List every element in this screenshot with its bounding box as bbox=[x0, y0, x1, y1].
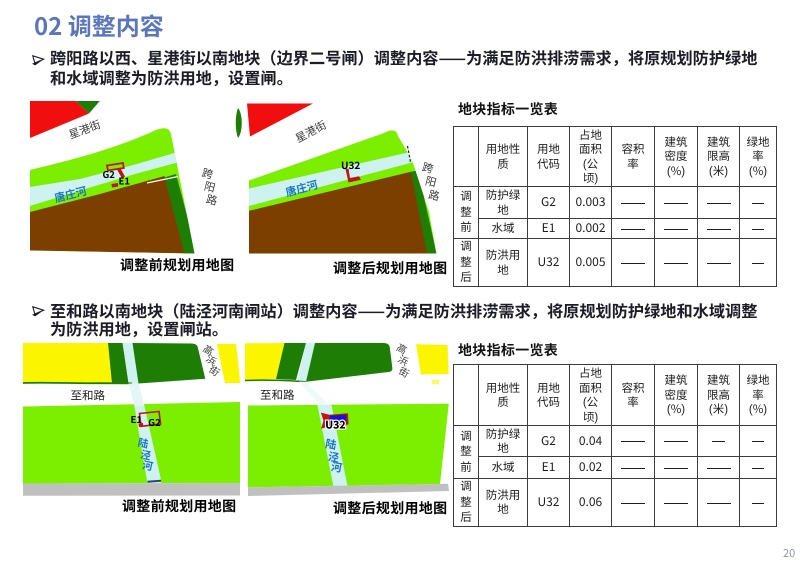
svg-text:E1: E1 bbox=[131, 412, 142, 426]
svg-text:星港街: 星港街 bbox=[292, 117, 329, 147]
svg-text:U32: U32 bbox=[341, 157, 360, 172]
svg-text:至和路: 至和路 bbox=[260, 387, 295, 403]
svg-text:路: 路 bbox=[427, 186, 442, 204]
svg-text:G2: G2 bbox=[103, 167, 116, 181]
svg-text:G2: G2 bbox=[148, 415, 161, 429]
svg-text:路: 路 bbox=[205, 191, 220, 209]
svg-text:U32: U32 bbox=[325, 417, 345, 432]
svg-text:E1: E1 bbox=[119, 174, 130, 188]
svg-text:至和路: 至和路 bbox=[71, 388, 106, 404]
